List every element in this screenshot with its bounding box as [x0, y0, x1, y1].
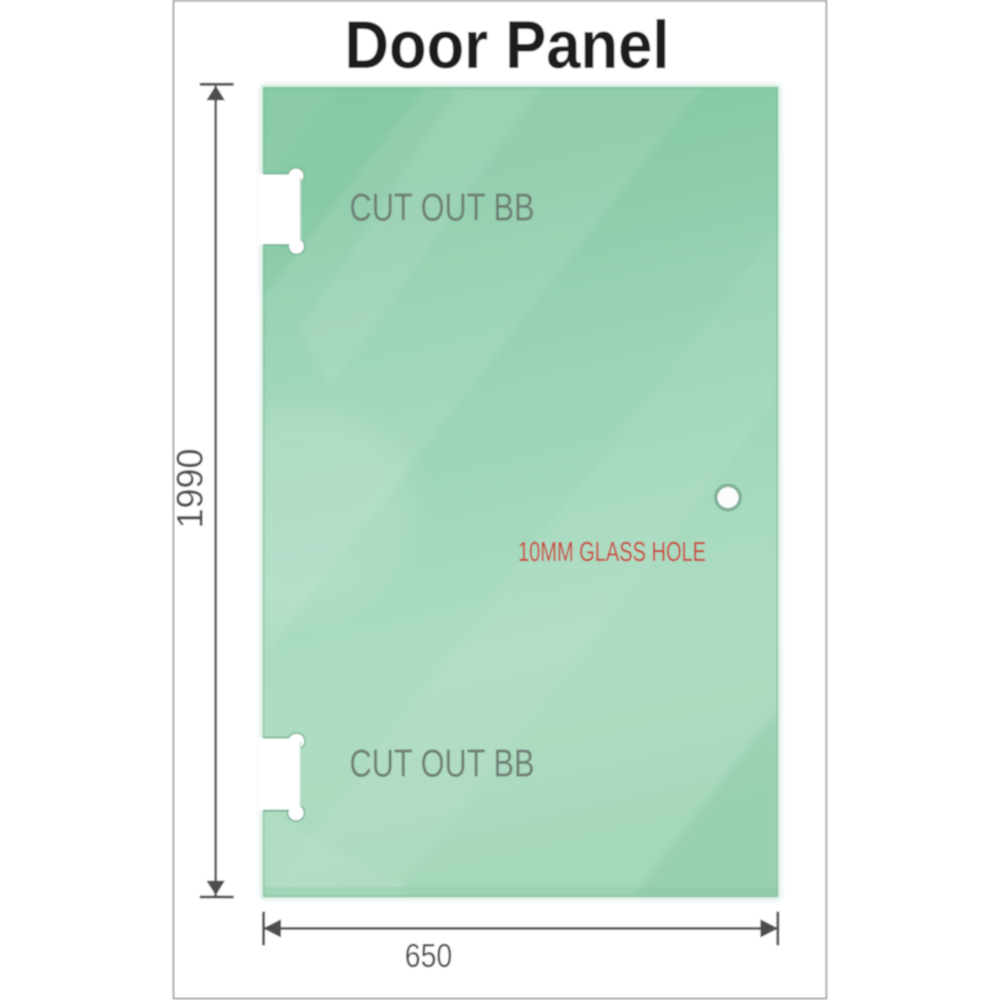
svg-text:CUT OUT BB: CUT OUT BB: [350, 742, 535, 785]
svg-text:1990: 1990: [169, 449, 210, 529]
svg-text:650: 650: [405, 937, 453, 974]
svg-text:Door Panel: Door Panel: [345, 7, 670, 83]
svg-text:CUT OUT BB: CUT OUT BB: [350, 187, 535, 230]
svg-text:10MM GLASS HOLE: 10MM GLASS HOLE: [518, 536, 706, 567]
